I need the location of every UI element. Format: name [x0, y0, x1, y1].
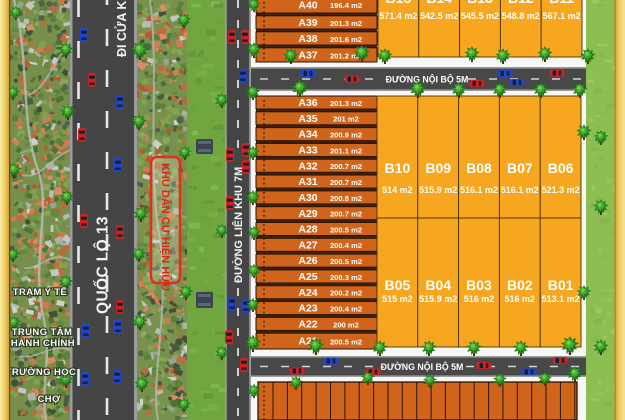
svg-text:B01: B01: [548, 277, 574, 293]
svg-text:A27: A27: [298, 239, 317, 251]
svg-text:KHU DÂN CƯ HIỆN HỮU: KHU DÂN CƯ HIỆN HỮU: [159, 163, 172, 291]
svg-text:516 m2: 516 m2: [505, 294, 536, 304]
svg-text:201.3 m2: 201.3 m2: [330, 19, 362, 28]
svg-text:A34: A34: [298, 129, 317, 141]
svg-text:200 m2: 200 m2: [333, 320, 359, 329]
svg-text:200.4 m2: 200.4 m2: [330, 241, 362, 250]
svg-text:CHỢ: CHỢ: [37, 394, 61, 405]
svg-text:200.7 m2: 200.7 m2: [330, 162, 362, 171]
svg-text:A23: A23: [298, 303, 317, 315]
svg-text:200.8 m2: 200.8 m2: [330, 194, 362, 203]
svg-text:A40: A40: [298, 0, 317, 11]
svg-text:B04: B04: [425, 277, 451, 293]
svg-text:516 m2: 516 m2: [464, 294, 495, 304]
svg-text:A39: A39: [298, 17, 317, 29]
svg-text:B06: B06: [548, 160, 574, 176]
svg-text:514 m2: 514 m2: [382, 185, 413, 195]
svg-text:521.3 m2: 521.3 m2: [542, 185, 580, 195]
svg-text:A25: A25: [298, 271, 317, 283]
svg-text:515.9 m2: 515.9 m2: [419, 185, 457, 195]
svg-text:B13: B13: [467, 0, 493, 6]
svg-text:B15: B15: [386, 0, 412, 6]
svg-text:201 m2: 201 m2: [333, 115, 359, 124]
svg-text:200.5 m2: 200.5 m2: [330, 337, 362, 346]
svg-text:A35: A35: [298, 113, 317, 125]
svg-text:ĐƯỜNG NỘI BỘ 5M: ĐƯỜNG NỘI BỘ 5M: [386, 73, 469, 84]
svg-text:TRUNG TÂM: TRUNG TÂM: [12, 326, 73, 338]
svg-text:ĐƯỜNG NỘI BỘ 5M: ĐƯỜNG NỘI BỘ 5M: [381, 361, 464, 372]
svg-text:A28: A28: [298, 224, 317, 236]
svg-text:545.5 m2: 545.5 m2: [461, 11, 499, 21]
svg-text:200.3 m2: 200.3 m2: [330, 273, 362, 282]
svg-text:B09: B09: [425, 160, 451, 176]
svg-text:B14: B14: [426, 0, 452, 6]
svg-text:B10: B10: [385, 160, 411, 176]
svg-text:A26: A26: [298, 255, 317, 267]
svg-text:B07: B07: [507, 160, 533, 176]
svg-text:A30: A30: [298, 192, 317, 204]
svg-text:B03: B03: [466, 277, 492, 293]
svg-text:A31: A31: [298, 176, 317, 188]
svg-text:567.1 m2: 567.1 m2: [543, 11, 581, 21]
svg-text:516.1 m2: 516.1 m2: [460, 185, 498, 195]
svg-text:201.1 m2: 201.1 m2: [330, 146, 362, 155]
svg-text:ĐƯỜNG LIÊN KHU 7M: ĐƯỜNG LIÊN KHU 7M: [232, 167, 245, 283]
svg-text:200.7 m2: 200.7 m2: [330, 178, 362, 187]
svg-text:A33: A33: [298, 145, 317, 157]
svg-text:196.4 m2: 196.4 m2: [330, 1, 362, 10]
svg-text:515.9 m2: 515.9 m2: [419, 294, 457, 304]
svg-text:200.4 m2: 200.4 m2: [330, 304, 362, 313]
svg-text:200.5 m2: 200.5 m2: [330, 257, 362, 266]
svg-text:201.6 m2: 201.6 m2: [330, 35, 362, 44]
svg-text:513.1 m2: 513.1 m2: [542, 294, 580, 304]
svg-text:A32: A32: [298, 160, 317, 172]
svg-text:HÀNH CHÍNH: HÀNH CHÍNH: [11, 338, 75, 349]
svg-text:A37: A37: [298, 50, 317, 62]
svg-text:A22: A22: [298, 318, 317, 330]
svg-text:A38: A38: [298, 33, 317, 45]
svg-text:B08: B08: [466, 160, 492, 176]
svg-text:516.1 m2: 516.1 m2: [501, 185, 539, 195]
svg-text:515 m2: 515 m2: [382, 294, 413, 304]
svg-text:571.4 m2: 571.4 m2: [379, 11, 417, 21]
svg-text:B12: B12: [508, 0, 534, 6]
svg-text:200.9 m2: 200.9 m2: [330, 131, 362, 140]
svg-text:200.2 m2: 200.2 m2: [330, 289, 362, 298]
svg-text:QUỐC LỘ 13: QUỐC LỘ 13: [94, 216, 112, 314]
svg-text:B02: B02: [507, 277, 533, 293]
svg-text:ĐI CỬA KHẨU: ĐI CỬA KHẨU: [114, 0, 129, 57]
svg-text:542.5 m2: 542.5 m2: [420, 11, 458, 21]
svg-text:A36: A36: [298, 97, 317, 109]
svg-text:TRƯỜNG HỌC: TRƯỜNG HỌC: [6, 366, 77, 378]
svg-text:A24: A24: [298, 287, 317, 299]
svg-text:200.5 m2: 200.5 m2: [330, 225, 362, 234]
svg-text:548.8 m2: 548.8 m2: [502, 11, 540, 21]
svg-text:TRẠM Y TẾ: TRẠM Y TẾ: [13, 287, 67, 298]
svg-text:201.3 m2: 201.3 m2: [330, 99, 362, 108]
svg-text:200.7 m2: 200.7 m2: [330, 210, 362, 219]
svg-text:A29: A29: [298, 208, 317, 220]
svg-text:B11: B11: [549, 0, 574, 6]
svg-text:B05: B05: [385, 277, 411, 293]
